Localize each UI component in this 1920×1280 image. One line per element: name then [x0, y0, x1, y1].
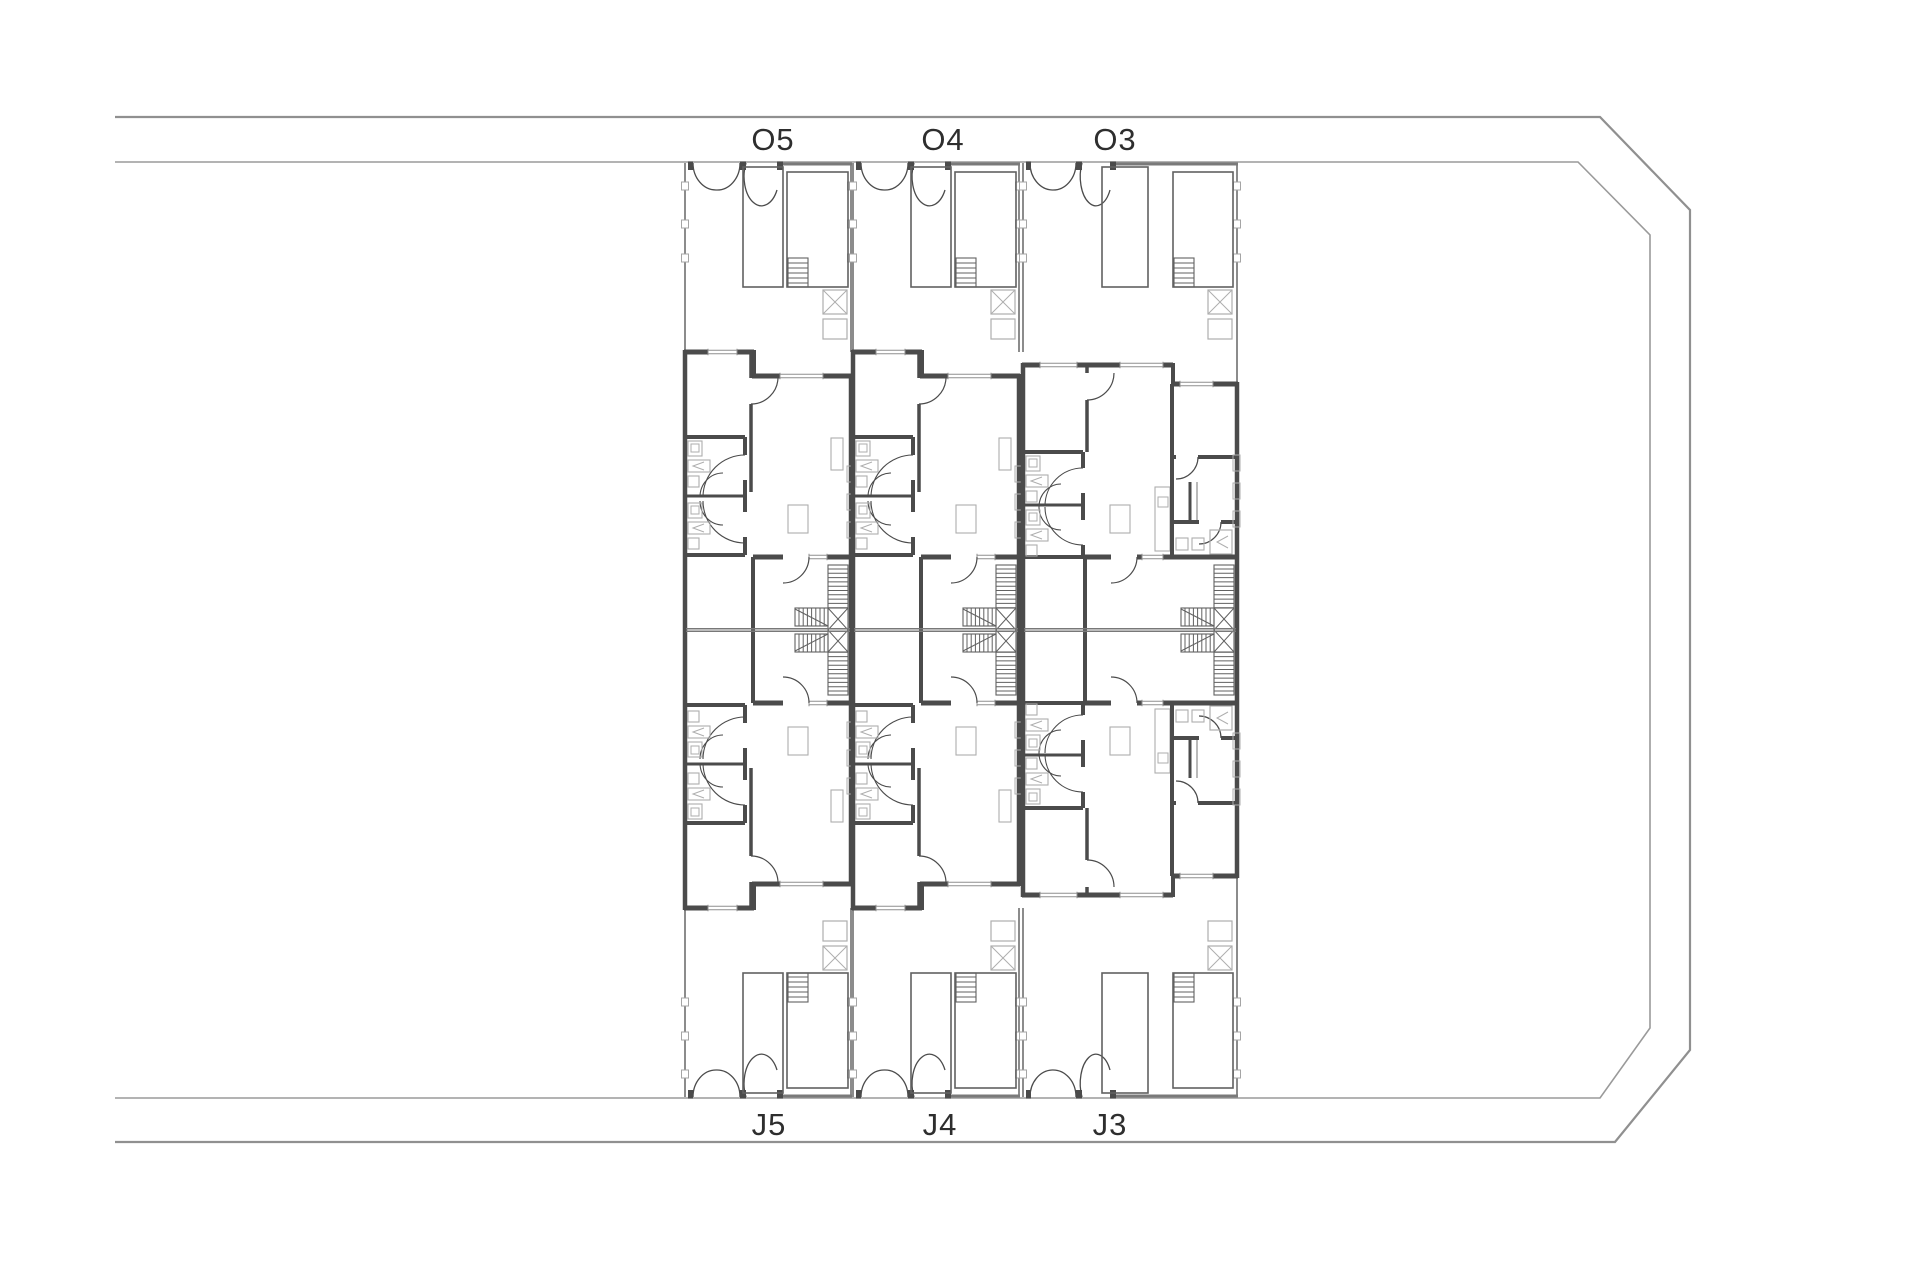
unit-top-label-3: O3: [1093, 122, 1136, 157]
garden-gate-door-arcs: [693, 1054, 777, 1097]
bathroom-core: [684, 705, 745, 823]
staircase: [963, 565, 1016, 630]
skylight-x-box: [991, 290, 1015, 339]
unit-interior: [684, 349, 854, 630]
pool: [743, 167, 848, 287]
skylight-x-box: [1208, 290, 1232, 339]
unit-column: [1020, 630, 1241, 1099]
floor-plan-canvas: O5 O4 O3 J5 J4 J3: [0, 0, 1920, 1280]
living-furniture: [788, 727, 843, 822]
staircase: [963, 630, 1016, 695]
pool: [911, 167, 1016, 287]
garden-gate-door-arcs: [1030, 163, 1110, 206]
garden-terrace: [850, 162, 1023, 353]
bathroom-core: [852, 437, 913, 555]
staircase: [1181, 565, 1234, 630]
unit-top-label-2: O4: [921, 122, 964, 157]
buildings-top-half: [682, 162, 1241, 631]
unit-interior: [852, 349, 1022, 630]
bathroom-core: [1022, 703, 1083, 808]
living-furniture: [788, 438, 843, 533]
living-furniture: [956, 438, 1011, 533]
staircase: [795, 630, 848, 695]
unit-column: [682, 630, 855, 1099]
pool: [1102, 973, 1233, 1093]
site-plan-page: O5 O4 O3 J5 J4 J3: [0, 0, 1920, 1280]
garden-terrace: [682, 162, 855, 353]
bathroom-core: [1022, 452, 1083, 557]
unit-interior: [852, 630, 1022, 911]
unit-bottom-label-2: J4: [923, 1107, 958, 1142]
unit-column: [1020, 162, 1241, 631]
unit-bottom-label-1: J5: [752, 1107, 787, 1142]
garden-terrace: [682, 908, 855, 1099]
bathroom-core: [852, 705, 913, 823]
staircase: [1181, 630, 1234, 695]
unit-column: [850, 162, 1023, 631]
plan-geometry: [115, 117, 1690, 1142]
unit-interior: [1022, 362, 1240, 630]
bathroom-core: [684, 437, 745, 555]
living-furniture: [1110, 709, 1170, 773]
unit-bottom-label-3: J3: [1093, 1107, 1128, 1142]
garden-gate-door-arcs: [693, 163, 777, 206]
living-furniture: [1110, 487, 1170, 551]
garden-terrace: [1020, 908, 1241, 1099]
unit-column: [850, 630, 1023, 1099]
unit-top-label-1: O5: [751, 122, 794, 157]
garden-gate-door-arcs: [861, 163, 945, 206]
skylight-x-box: [1208, 921, 1232, 970]
second-bathroom-fixtures: [1176, 706, 1232, 730]
staircase: [795, 565, 848, 630]
buildings-bottom-half: [682, 630, 1241, 1099]
unit-column: [682, 162, 855, 631]
skylight-x-box: [823, 290, 847, 339]
garden-gate-door-arcs: [1030, 1054, 1110, 1097]
garden-gate-door-arcs: [861, 1054, 945, 1097]
site-boundary: [115, 117, 1690, 1142]
pool: [743, 973, 848, 1093]
skylight-x-box: [823, 921, 847, 970]
pool: [911, 973, 1016, 1093]
unit-interior: [684, 630, 854, 911]
unit-interior: [1022, 630, 1240, 898]
garden-terrace: [1020, 162, 1241, 353]
living-furniture: [956, 727, 1011, 822]
skylight-x-box: [991, 921, 1015, 970]
second-bathroom-fixtures: [1176, 530, 1232, 554]
pool: [1102, 167, 1233, 287]
garden-terrace: [850, 908, 1023, 1099]
